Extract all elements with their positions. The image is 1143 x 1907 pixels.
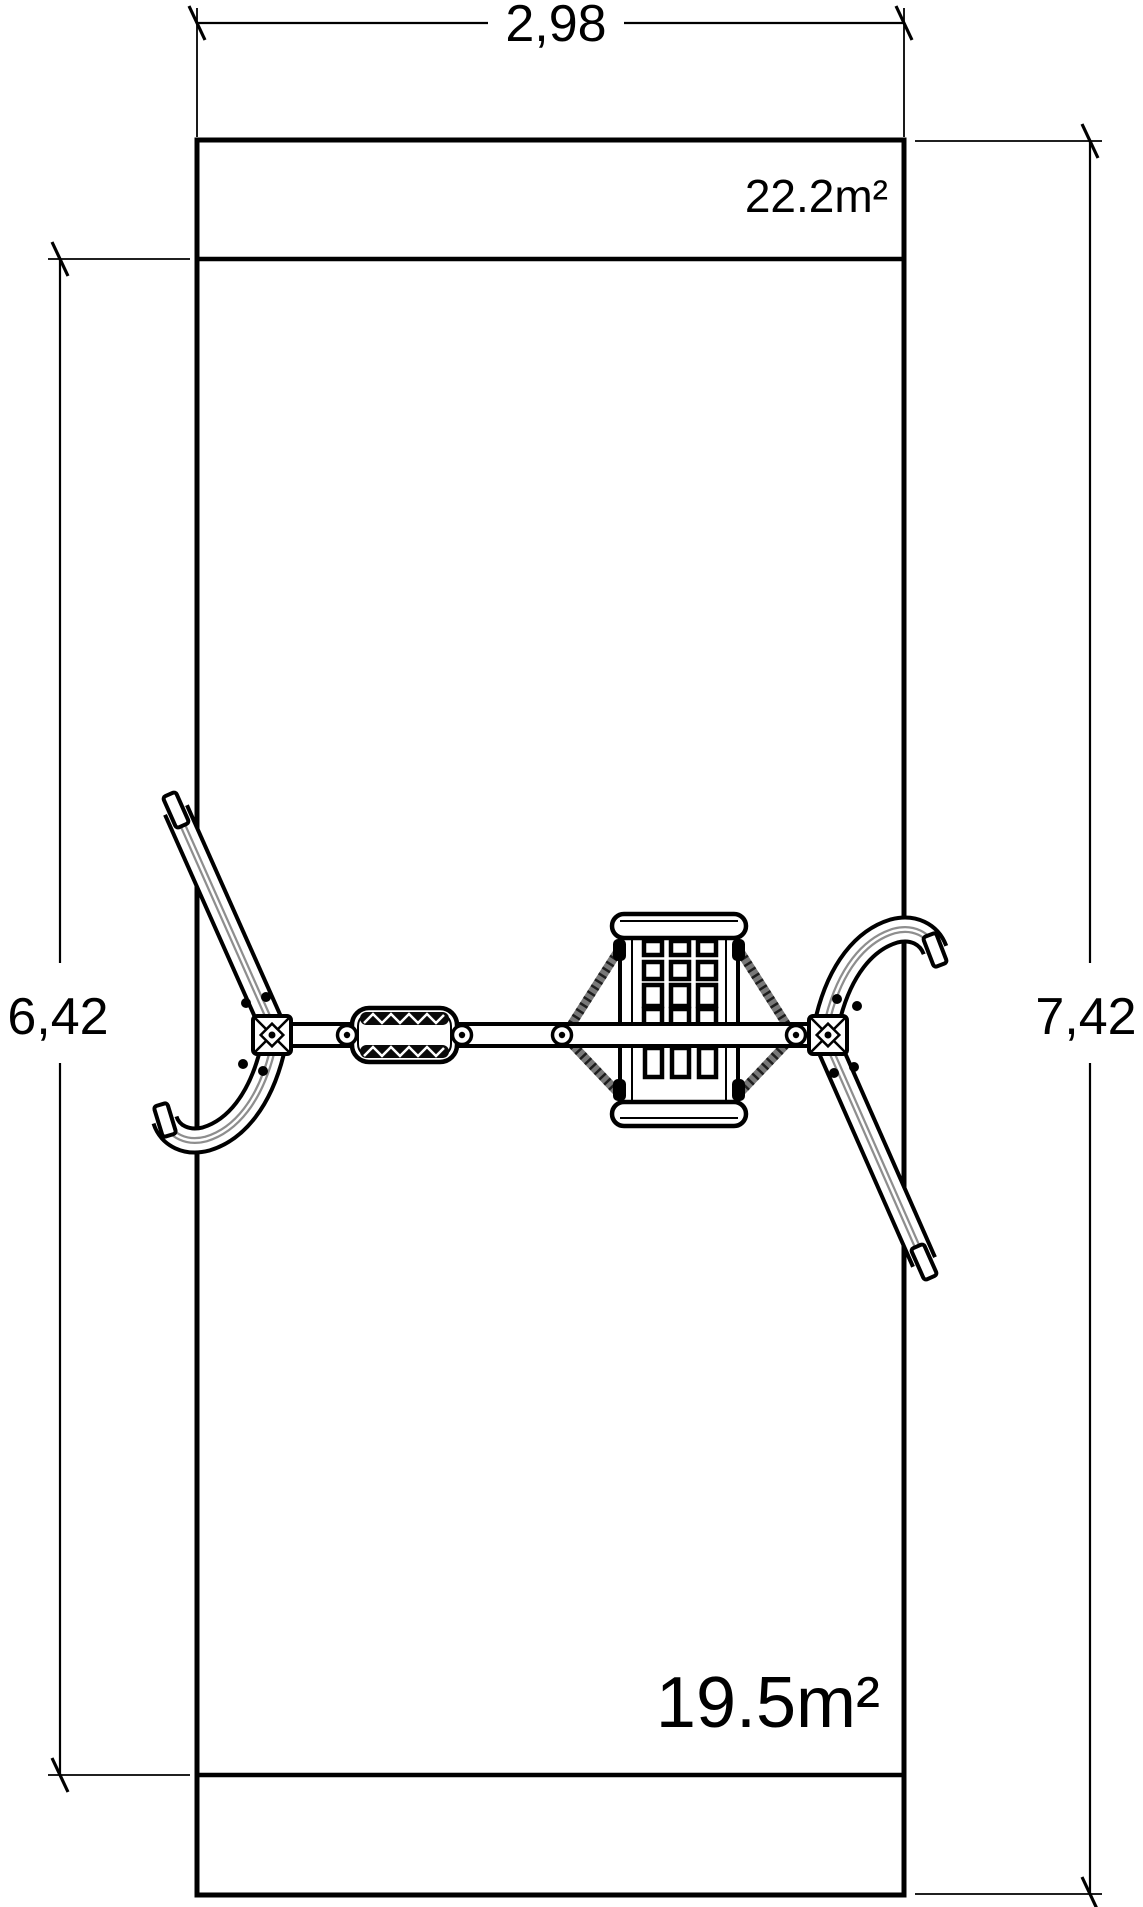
- seat-grid-lower: [645, 1048, 716, 1077]
- swing-seat: [612, 914, 746, 1126]
- seat-grid-upper: [644, 941, 716, 1031]
- safety-zone-outline: [197, 140, 904, 1895]
- bolt: [338, 1026, 357, 1045]
- bolt: [553, 1026, 572, 1045]
- bolt: [787, 1026, 806, 1045]
- bolt: [453, 1026, 472, 1045]
- upper-zone-area-label: 22.2m²: [745, 170, 888, 222]
- dimension-right-label: 7,42: [1035, 988, 1136, 1046]
- drawing-canvas: 22.2m² 19.5m² 2,98 6,42 7,42: [0, 0, 1143, 1907]
- outer-boundary-rect: [197, 140, 904, 1895]
- lower-zone-area-label: 19.5m²: [656, 1663, 880, 1743]
- handle-grip: [352, 1008, 457, 1062]
- dimension-top-label: 2,98: [505, 0, 606, 53]
- dimension-left-label: 6,42: [7, 988, 108, 1046]
